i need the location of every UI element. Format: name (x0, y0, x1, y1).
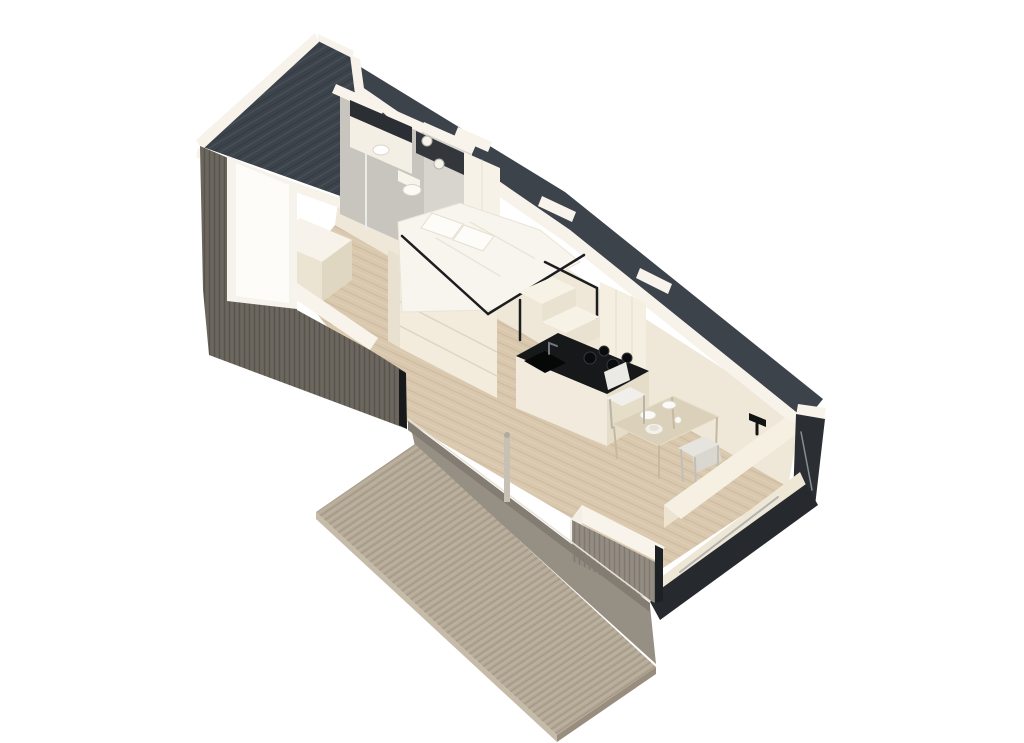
entry-window-glow (236, 163, 289, 303)
front-wall-end-edge (399, 369, 407, 429)
cup (675, 417, 682, 424)
serving-bowl-inner (649, 425, 659, 431)
cooktop-burner-4 (622, 353, 632, 363)
wall-stub-dark-edge (655, 545, 663, 603)
plate-2 (662, 401, 676, 409)
wall-lamp-1 (422, 136, 432, 146)
toilet-bowl (403, 185, 421, 196)
bed-platform-left (388, 250, 400, 348)
wall-lamp-2 (434, 159, 444, 169)
cooktop-burner-2 (599, 346, 609, 356)
vanity-sink-bowl (373, 145, 389, 155)
glass-door-post-cap (504, 432, 510, 438)
tiny-house-3d-floor-plan (0, 0, 1024, 743)
cooktop-burner-1 (584, 352, 596, 364)
glass-door-post (504, 436, 510, 502)
plate-1 (640, 411, 656, 420)
isometric-rendering-canvas (0, 0, 1024, 743)
